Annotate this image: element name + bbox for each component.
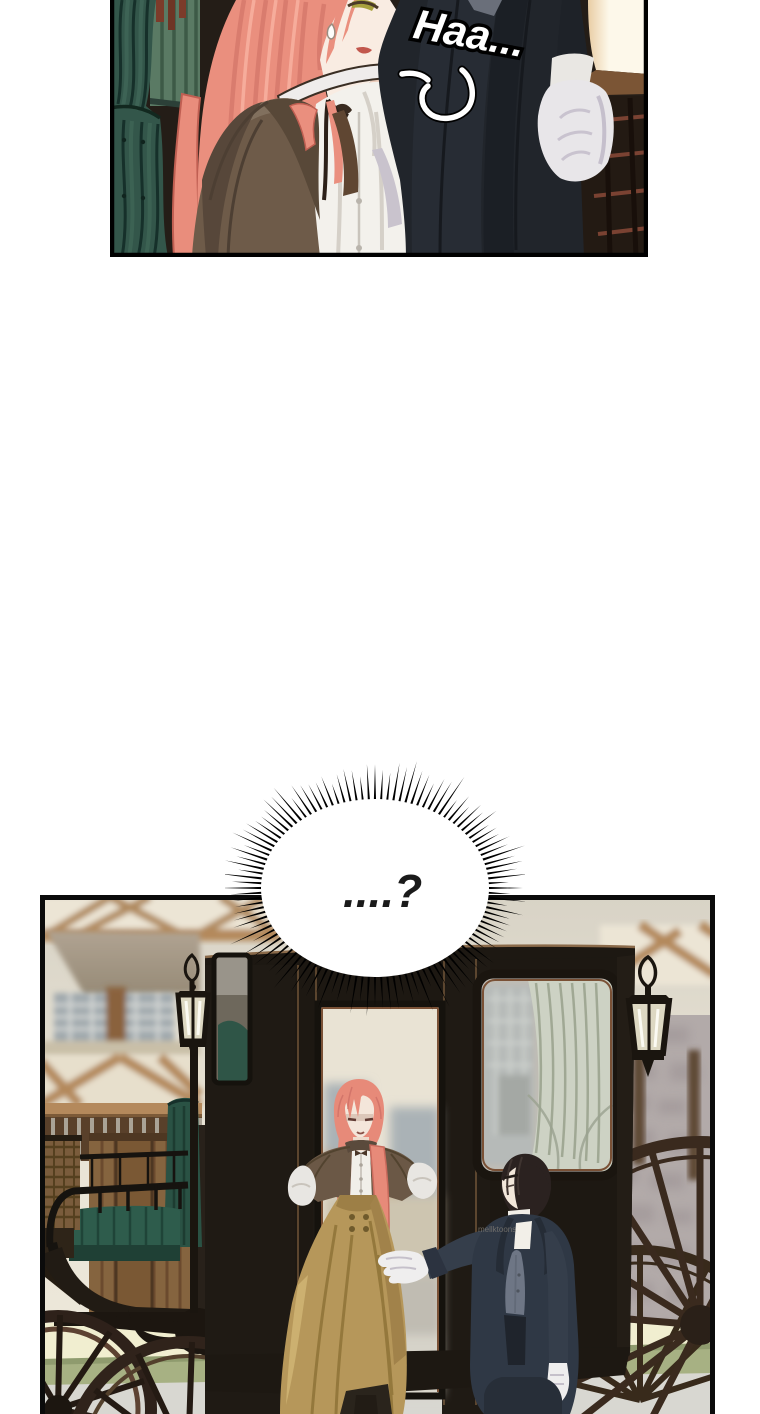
- svg-text:mellktoons: mellktoons: [478, 1225, 516, 1234]
- svg-text:....?: ....?: [343, 865, 422, 917]
